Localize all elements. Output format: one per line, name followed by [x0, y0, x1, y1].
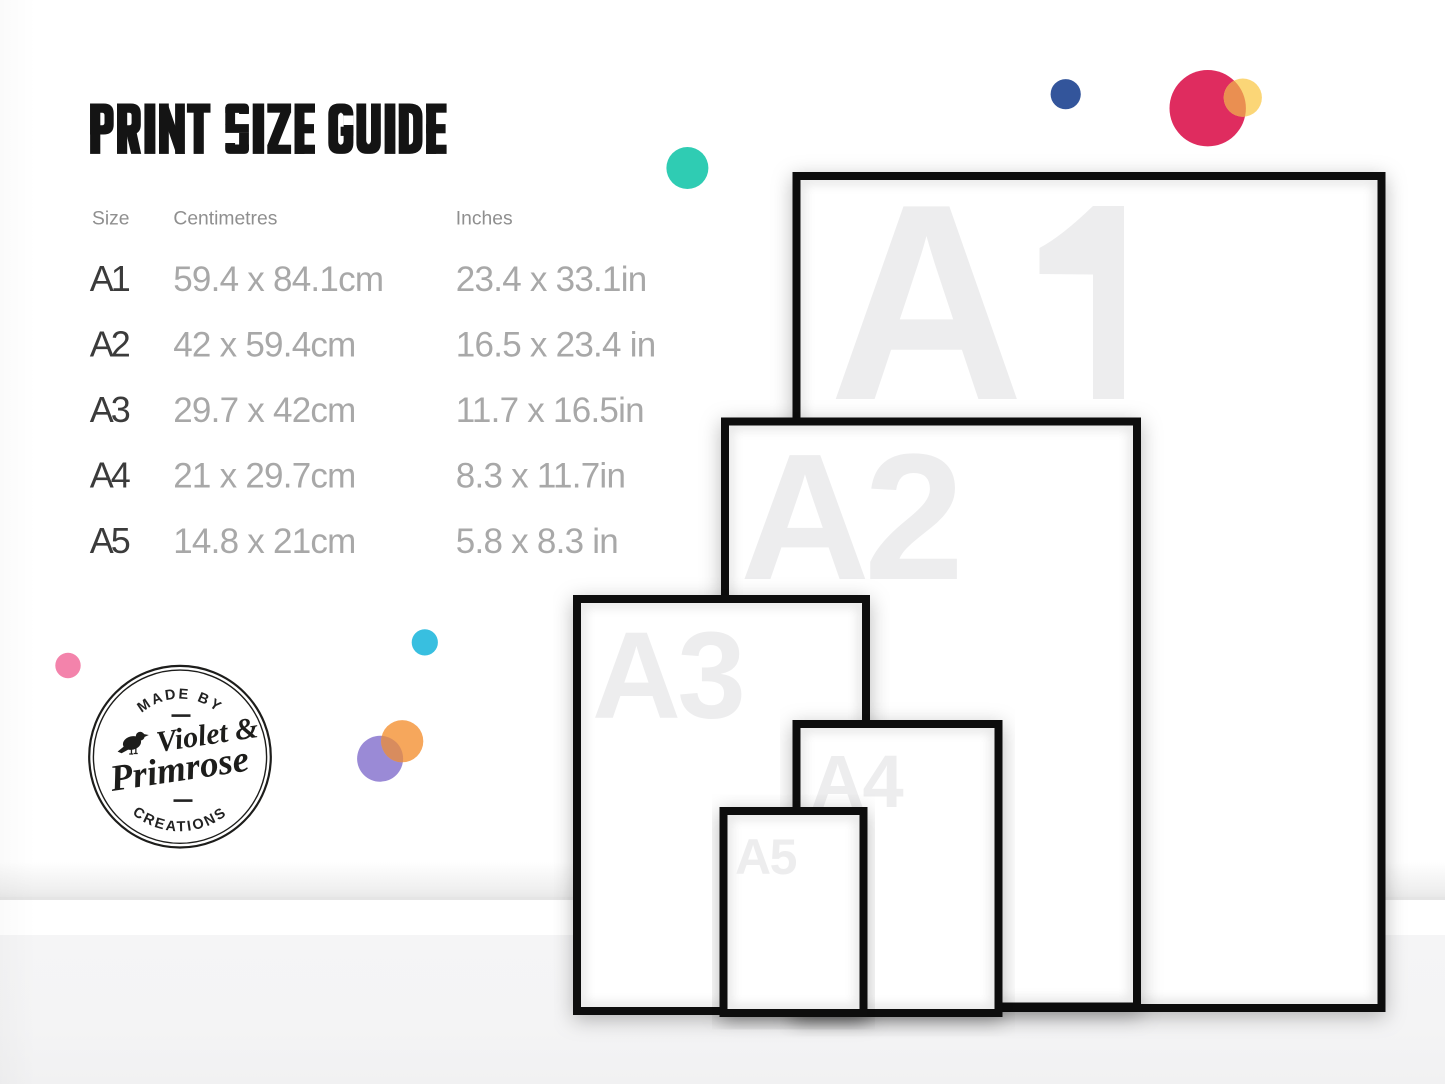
svg-text:42 x 59.4cm: 42 x 59.4cm — [173, 326, 355, 365]
svg-text:A5: A5 — [735, 829, 797, 885]
svg-text:59.4 x 84.1cm: 59.4 x 84.1cm — [173, 260, 383, 299]
svg-text:Centimetres: Centimetres — [173, 209, 277, 230]
svg-text:A3: A3 — [592, 608, 742, 745]
svg-text:A5: A5 — [90, 520, 130, 561]
svg-text:A2: A2 — [90, 324, 130, 365]
svg-text:5.8 x 8.3 in: 5.8 x 8.3 in — [456, 522, 618, 561]
svg-text:A3: A3 — [90, 389, 130, 430]
svg-text:A4: A4 — [90, 455, 130, 496]
svg-text:29.7 x 42cm: 29.7 x 42cm — [173, 391, 355, 430]
svg-text:23.4 x 33.1in: 23.4 x 33.1in — [456, 260, 647, 299]
svg-text:A1: A1 — [90, 258, 130, 299]
svg-text:21 x 29.7cm: 21 x 29.7cm — [173, 457, 355, 496]
svg-text:11.7 x 16.5in: 11.7 x 16.5in — [456, 391, 644, 430]
svg-text:Size: Size — [92, 209, 130, 230]
svg-text:14.8 x 21cm: 14.8 x 21cm — [173, 522, 355, 561]
svg-text:A: A — [829, 147, 1024, 459]
svg-text:16.5 x 23.4 in: 16.5 x 23.4 in — [456, 326, 656, 365]
svg-text:8.3 x 11.7in: 8.3 x 11.7in — [456, 457, 625, 496]
svg-text:Inches: Inches — [456, 209, 513, 230]
svg-text:A2: A2 — [740, 417, 958, 618]
